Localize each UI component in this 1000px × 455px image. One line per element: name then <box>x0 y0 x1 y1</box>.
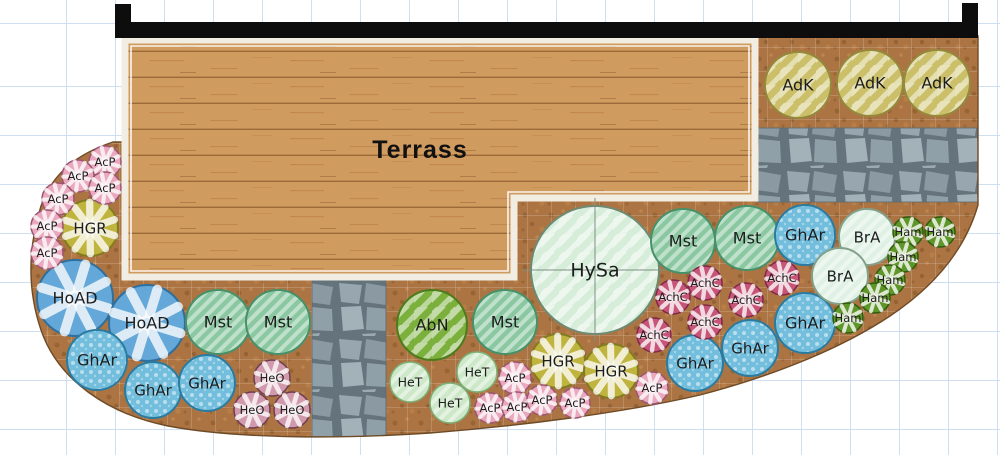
plant-circle-Ham: Ham <box>833 303 863 333</box>
plant-label: AcP <box>95 181 116 195</box>
plant-circle-HeT: HeT <box>390 362 430 402</box>
plant-circle-AcP: AcP <box>636 372 668 404</box>
plant-label: HoAD <box>52 289 97 308</box>
plant-label: AcP <box>68 169 89 183</box>
plant-circle-AcP: AcP <box>560 388 590 418</box>
plant-circle-HeO: HeO <box>254 360 290 396</box>
wall <box>115 22 978 38</box>
plant-circle-HeT: HeT <box>457 352 497 392</box>
plant-label: AcP <box>480 401 501 415</box>
plant-label: GhAr <box>77 351 117 370</box>
plant-label: AdK <box>921 74 953 93</box>
plant-label: HySa <box>570 260 619 282</box>
plant-label: Mst <box>669 232 697 251</box>
plant-circle-HeO: HeO <box>274 392 310 428</box>
plant-label: AdK <box>782 76 814 95</box>
wall-right-post <box>962 3 978 24</box>
plant-label: Mst <box>733 229 761 248</box>
stone-patio <box>758 128 978 202</box>
plant-label: HGR <box>73 219 106 237</box>
plant-label: Ham <box>862 291 889 305</box>
plant-circle-Ham: Ham <box>925 217 955 247</box>
plant-label: GhAr <box>785 226 825 245</box>
plant-circle-AchC: AchC <box>765 261 799 295</box>
plant-circle-AchC: AchC <box>729 283 763 317</box>
plan-svg: HySaAdKAdKAdKHoADHoADMstMstMstMstMstAbNG… <box>0 0 1000 455</box>
wall-left-post <box>115 4 131 24</box>
plant-label: BrA <box>854 228 881 246</box>
plant-label: AcP <box>642 381 663 395</box>
plant-circle-AbN: AbN <box>397 290 467 360</box>
plant-circle-AchC: AchC <box>688 266 722 300</box>
plant-label: Mst <box>264 313 292 332</box>
plant-label: AchC <box>767 271 796 285</box>
terrace-label: Terrass <box>372 136 468 164</box>
plant-label: AbN <box>415 316 448 335</box>
plant-circle-AcP: AcP <box>31 237 63 269</box>
plant-circle-AcP: AcP <box>499 362 531 394</box>
plant-label: AchC <box>658 290 687 304</box>
plant-label: HeO <box>260 371 285 385</box>
plant-circle-HeO: HeO <box>234 392 270 428</box>
plant-label: GhAr <box>188 374 226 392</box>
plant-label: AcP <box>37 246 58 260</box>
plant-circle-AcP: AcP <box>475 393 505 423</box>
plant-label: Mst <box>204 313 232 332</box>
plant-label: HeO <box>280 403 305 417</box>
plant-circle-AcP: AcP <box>89 172 121 204</box>
plant-circle-HGR: HGR <box>531 334 585 388</box>
plant-circle-GhAr: GhAr <box>775 293 835 353</box>
plant-label: HeO <box>240 403 265 417</box>
plant-label: Ham <box>895 225 922 239</box>
plant-label: Ham <box>927 225 954 239</box>
plant-label: HeT <box>398 374 423 389</box>
plant-circle-HGR: HGR <box>584 344 638 398</box>
plant-circle-AcP: AcP <box>527 385 557 415</box>
plant-label: Ham <box>890 250 917 264</box>
plant-circle-GhAr: GhAr <box>67 330 127 390</box>
plant-circle-GhAr: GhAr <box>722 320 778 376</box>
plant-circle-HoAD: HoAD <box>37 260 113 336</box>
plant-label: AcP <box>507 400 528 414</box>
plant-label: AchC <box>639 328 668 342</box>
plant-label: Mst <box>491 313 519 332</box>
plant-circle-Mst: Mst <box>186 290 250 354</box>
plant-label: GhAr <box>134 381 172 399</box>
plant-circle-Ham: Ham <box>860 283 890 313</box>
plant-circle-Mst: Mst <box>651 209 715 273</box>
plant-circle-Mst: Mst <box>246 290 310 354</box>
plant-circle-AchC: AchC <box>656 280 690 314</box>
plant-circle-GhAr: GhAr <box>179 355 235 411</box>
plant-circle-HeT: HeT <box>430 383 470 423</box>
plant-circle-AchC: AchC <box>637 318 671 352</box>
plant-circle-AchC: AchC <box>688 305 722 339</box>
garden-plan-stage: HySaAdKAdKAdKHoADHoADMstMstMstMstMstAbNG… <box>0 0 1000 455</box>
plant-label: AchC <box>690 315 719 329</box>
plant-circle-AdK: AdK <box>765 52 831 118</box>
plant-label: AchC <box>731 293 760 307</box>
plant-label: HGR <box>541 352 574 370</box>
plant-circle-GhAr: GhAr <box>667 335 723 391</box>
plant-circle-Mst: Mst <box>715 206 779 270</box>
plant-label: HoAD <box>124 314 169 333</box>
plant-label: Ham <box>835 311 862 325</box>
plant-label: GhAr <box>731 339 769 357</box>
plant-circle-AdK: AdK <box>837 50 903 116</box>
plant-label: AdK <box>854 74 886 93</box>
plant-label: GhAr <box>785 314 825 333</box>
plant-circle-Mst: Mst <box>473 290 537 354</box>
plant-label: AcP <box>505 371 526 385</box>
plant-label: BrA <box>827 267 854 285</box>
plant-circle-AdK: AdK <box>904 50 970 116</box>
plant-label: GhAr <box>676 354 714 372</box>
plant-circle-GhAr: GhAr <box>125 362 181 418</box>
plant-label: AchC <box>690 276 719 290</box>
plant-label: AcP <box>565 396 586 410</box>
plant-label: HeT <box>465 364 490 379</box>
plant-label: AcP <box>48 192 69 206</box>
plant-label: AcP <box>95 155 116 169</box>
plant-label: AcP <box>532 393 553 407</box>
plant-label: HeT <box>438 395 463 410</box>
stone-walkway <box>312 276 386 438</box>
plant-label: AcP <box>37 219 58 233</box>
plant-label: HGR <box>594 362 627 380</box>
